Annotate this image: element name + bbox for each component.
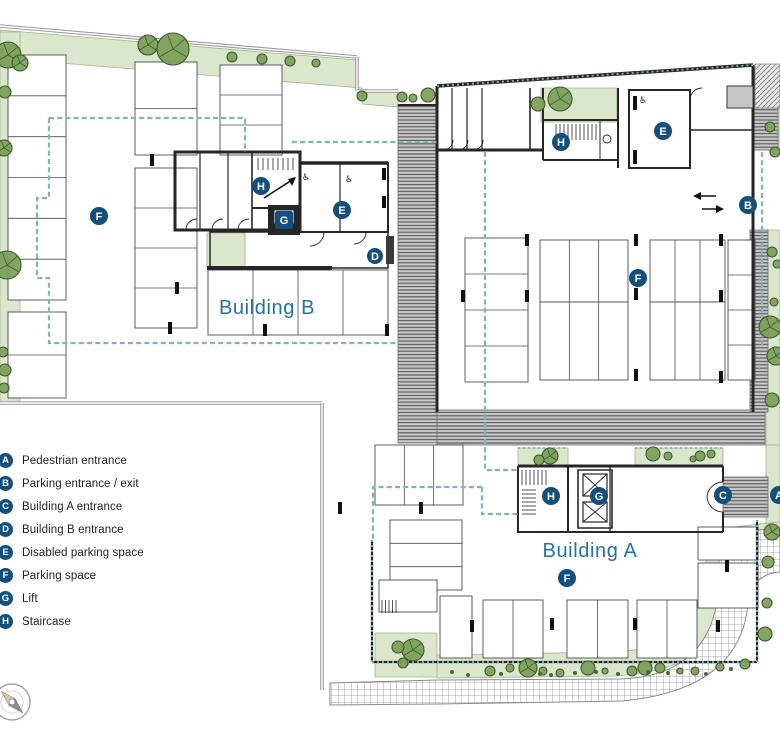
legend-item-E: EDisabled parking space (0, 541, 190, 564)
wheel-stop (634, 288, 638, 300)
tree-icon (770, 147, 780, 157)
bush-icon (573, 671, 577, 675)
tree-icon (602, 668, 608, 674)
site-plan-page: ♿♿♿Building BBuilding AFHGEDHEBFHGCAF AP… (0, 0, 780, 733)
wheel-stop (175, 282, 179, 294)
bush-icon (499, 672, 503, 676)
tree-icon (534, 455, 544, 465)
dashed-boundary-line (482, 487, 518, 514)
wheel-stop (550, 618, 554, 630)
solid-element (727, 86, 753, 108)
marker-badge-C: C (714, 486, 732, 504)
badge-letter: F (635, 273, 642, 285)
tree-icon (0, 364, 11, 376)
wheel-stop (725, 560, 729, 572)
marker-badge-F: F (90, 207, 108, 225)
solid-element (386, 236, 394, 264)
building-wall (310, 232, 324, 246)
wheel-stop (419, 502, 423, 514)
tree-icon (762, 556, 774, 568)
legend-badge-D: D (0, 522, 13, 537)
staircase-symbol (258, 158, 293, 170)
parking-stall-group (540, 240, 628, 302)
wheel-stop (634, 369, 638, 381)
tree-icon (767, 247, 777, 257)
tree-icon (506, 664, 514, 672)
legend-label: Parking entrance / exit (22, 478, 139, 490)
wheel-stop (168, 322, 172, 334)
wheel-stop (633, 618, 637, 630)
wheel-stop (719, 290, 723, 302)
badge-letter: C (719, 490, 727, 502)
parking-stall-group (390, 520, 462, 590)
bush-icon (549, 673, 553, 677)
marker-badge-H: H (252, 177, 270, 195)
direction-arrow-head (716, 205, 724, 213)
legend-badge-A: A (0, 453, 13, 468)
tree-icon (227, 52, 237, 62)
bush-icon (594, 670, 598, 674)
parking-stall-group (650, 302, 725, 380)
building-wall (354, 232, 366, 244)
fixture-icon (603, 135, 611, 143)
building-wall (437, 65, 753, 86)
parking-stall-group (379, 580, 437, 612)
badge-letter: F (96, 211, 103, 223)
legend-badge-C: C (0, 499, 13, 514)
badge-letter: G (280, 215, 289, 227)
legend-badge-H: H (0, 614, 13, 629)
bush-icon (538, 672, 542, 676)
solid-element (382, 196, 386, 208)
direction-arrow-head (693, 192, 701, 200)
legend-label: Lift (22, 593, 38, 605)
tree-icon (257, 54, 267, 64)
badge-letter: E (338, 205, 345, 217)
legend-item-G: GLift (0, 587, 190, 610)
wheel-stop (525, 234, 529, 246)
compass-icon (0, 684, 30, 720)
wheelchair-icon: ♿ (345, 175, 353, 185)
parking-stall-group (650, 240, 725, 302)
legend-badge-F: F (0, 568, 13, 583)
tree-icon (392, 641, 404, 653)
legend-label: Building B entrance (22, 524, 124, 536)
tree-icon (485, 666, 495, 676)
bush-icon (616, 672, 620, 676)
diagonal-hatch (755, 64, 780, 108)
wheel-stop (634, 234, 638, 246)
tree-icon (397, 92, 407, 102)
bush-icon (450, 670, 454, 674)
tree-icon (758, 627, 772, 641)
badge-letter: H (557, 137, 565, 149)
tree-icon (0, 383, 9, 393)
tree-icon (357, 91, 367, 101)
tree-icon (312, 59, 320, 67)
staircase-symbol (522, 470, 546, 485)
badge-letter: F (564, 573, 571, 585)
tree-icon (677, 668, 683, 674)
tree-icon (655, 663, 665, 673)
marker-badge-G: G (275, 211, 293, 229)
legend-badge-G: G (0, 591, 13, 606)
marker-badge-H: H (542, 487, 560, 505)
parking-stall-group (375, 445, 463, 505)
ramp-band (437, 410, 765, 445)
wheel-stop (338, 502, 342, 514)
tree-icon (0, 86, 11, 98)
wheel-stop (470, 620, 474, 632)
legend-item-A: APedestrian entrance (0, 449, 190, 472)
marker-badge-F: F (558, 569, 576, 587)
tree-icon (773, 260, 780, 268)
compass-hub (9, 699, 15, 705)
green-area (207, 233, 245, 268)
wheel-stop (719, 371, 723, 383)
marker-badge-D: D (367, 248, 383, 264)
solid-element (633, 96, 637, 110)
tree-icon (664, 452, 672, 460)
badge-letter: G (595, 491, 604, 503)
badge-letter: A (775, 490, 780, 502)
tree-icon (765, 122, 775, 132)
wheel-stop (263, 324, 267, 336)
staircase-symbol (522, 490, 536, 514)
tree-icon (556, 669, 564, 677)
tree-icon (770, 298, 778, 306)
tree-icon (716, 663, 724, 671)
tree-icon (285, 56, 295, 66)
tree-icon (740, 659, 750, 669)
badge-letter: B (744, 200, 752, 212)
marker-badge-B: B (739, 196, 757, 214)
wheel-stop (719, 234, 723, 246)
bush-icon (704, 672, 708, 676)
tree-icon (762, 598, 772, 608)
badge-letter: H (547, 491, 555, 503)
tree-icon (707, 450, 715, 458)
tree-icon (690, 456, 696, 462)
badge-letter: D (371, 251, 379, 263)
ramp-band (398, 105, 437, 443)
legend-label: Parking space (22, 570, 96, 582)
building-label: Building B (219, 297, 315, 319)
building-wall (300, 163, 388, 232)
parking-stall-group (540, 302, 628, 380)
tree-icon (531, 97, 545, 111)
marker-badge-E: E (654, 122, 672, 140)
legend-item-D: DBuilding B entrance (0, 518, 190, 541)
legend: APedestrian entranceBParking entrance / … (0, 449, 190, 633)
parking-stall-group (440, 596, 472, 658)
legend-item-H: HStaircase (0, 610, 190, 633)
marker-badge-H: H (552, 133, 570, 151)
marker-badge-F: F (629, 269, 647, 287)
solid-element (633, 150, 637, 164)
legend-item-C: CBuilding A entrance (0, 495, 190, 518)
marker-badge-G: G (590, 487, 608, 505)
tree-icon (646, 447, 660, 461)
wheel-stop (150, 154, 154, 166)
tree-icon (765, 393, 779, 407)
parking-stall-group (220, 65, 282, 155)
tree-icon (627, 666, 637, 676)
legend-label: Pedestrian entrance (22, 455, 127, 467)
bush-icon (729, 667, 733, 671)
wheelchair-icon: ♿ (639, 96, 647, 106)
legend-badge-B: B (0, 476, 13, 491)
bush-icon (666, 671, 670, 675)
building-wall (238, 219, 249, 230)
wheel-stop (461, 290, 465, 302)
building-wall (690, 88, 702, 100)
solid-element (382, 168, 386, 180)
tree-icon (0, 347, 8, 357)
tree-icon (691, 667, 699, 675)
wheelchair-icon: ♿ (302, 173, 310, 183)
badge-letter: E (659, 126, 666, 138)
building-label: Building A (543, 540, 638, 562)
legend-label: Staircase (22, 616, 71, 628)
marker-badge-E: E (333, 201, 351, 219)
legend-item-F: FParking space (0, 564, 190, 587)
legend-label: Disabled parking space (22, 547, 144, 559)
legend-label: Building A entrance (22, 501, 122, 513)
legend-badge-E: E (0, 545, 13, 560)
bush-icon (466, 673, 470, 677)
tree-icon (421, 88, 435, 102)
legend-item-B: BParking entrance / exit (0, 472, 190, 495)
tree-icon (409, 94, 417, 102)
tree-icon (398, 658, 408, 668)
building-wall (212, 219, 223, 230)
bush-icon (646, 670, 650, 674)
wheel-stop (525, 290, 529, 302)
tree-icon (638, 661, 652, 675)
badge-letter: H (257, 181, 265, 193)
wheel-stop (716, 620, 720, 632)
tree-icon (581, 661, 595, 675)
wheel-stop (385, 324, 389, 336)
